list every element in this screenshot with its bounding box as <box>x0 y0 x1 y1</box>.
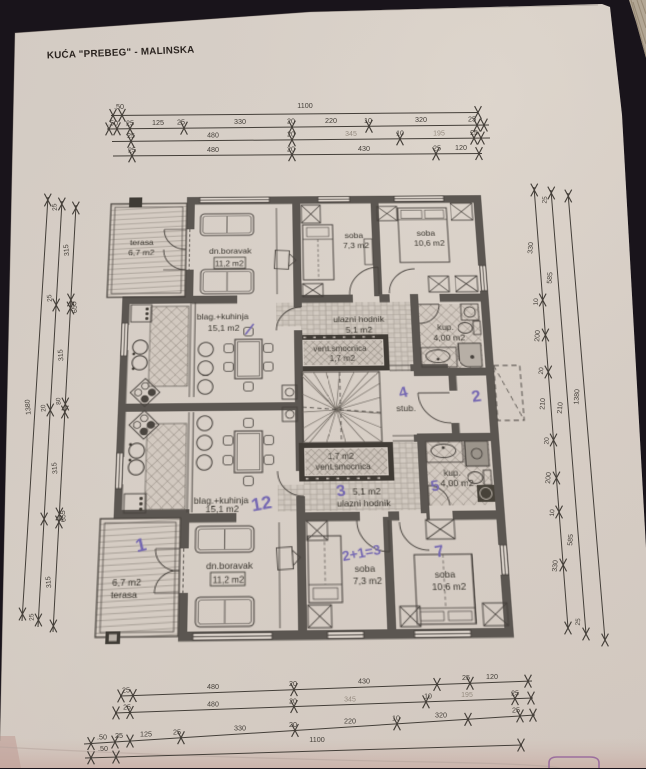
svg-text:330: 330 <box>234 723 246 732</box>
svg-text:10: 10 <box>424 694 432 701</box>
svg-text:125: 125 <box>140 730 152 739</box>
svg-text:220: 220 <box>344 716 356 725</box>
svg-text:655: 655 <box>71 301 79 313</box>
svg-text:345: 345 <box>344 696 356 703</box>
svg-text:210: 210 <box>539 398 547 410</box>
svg-text:25: 25 <box>46 294 54 302</box>
svg-text:315: 315 <box>51 462 59 474</box>
svg-text:330: 330 <box>527 242 535 254</box>
svg-text:655: 655 <box>60 510 68 522</box>
svg-text:320: 320 <box>435 711 447 720</box>
svg-text:20: 20 <box>543 437 551 445</box>
svg-text:1380: 1380 <box>24 399 32 415</box>
svg-text:.50: .50 <box>98 744 108 753</box>
svg-text:20: 20 <box>287 132 295 139</box>
svg-text:20: 20 <box>289 698 297 705</box>
svg-text:20: 20 <box>287 117 295 126</box>
svg-text:430: 430 <box>358 677 370 686</box>
svg-text:25: 25 <box>511 690 519 697</box>
svg-text:315: 315 <box>57 349 65 361</box>
svg-text:25: 25 <box>173 728 181 737</box>
svg-text:195: 195 <box>461 692 473 699</box>
svg-text:200: 200 <box>545 472 553 484</box>
svg-text:480: 480 <box>207 132 219 139</box>
svg-text:25: 25 <box>462 673 470 682</box>
svg-text:480: 480 <box>207 682 219 691</box>
svg-text:1100: 1100 <box>309 735 324 744</box>
svg-text:25: 25 <box>122 685 130 694</box>
svg-text:25: 25 <box>123 704 131 711</box>
svg-text:20: 20 <box>538 367 546 375</box>
svg-text:25: 25 <box>51 203 59 211</box>
svg-text:20: 20 <box>287 144 295 153</box>
svg-text:25: 25 <box>115 731 123 740</box>
svg-text:200: 200 <box>534 330 542 342</box>
svg-text:25: 25 <box>468 115 476 124</box>
svg-text:10: 10 <box>533 298 541 306</box>
svg-text:320: 320 <box>415 115 427 124</box>
svg-text:330: 330 <box>234 117 246 126</box>
svg-text:10: 10 <box>364 116 372 125</box>
svg-text:80: 80 <box>55 397 63 405</box>
svg-text:345: 345 <box>345 131 357 138</box>
svg-text:25: 25 <box>512 706 520 715</box>
svg-text:330: 330 <box>552 560 560 572</box>
svg-text:.50: .50 <box>114 102 124 111</box>
svg-text:195: 195 <box>433 130 445 137</box>
svg-text:120: 120 <box>486 672 498 681</box>
svg-text:.50: .50 <box>108 118 118 127</box>
svg-text:KUĆA "PREBEG" - MALINSKA: KUĆA "PREBEG" - MALINSKA <box>47 44 195 62</box>
svg-text:10: 10 <box>396 131 404 138</box>
svg-text:120: 120 <box>455 143 467 152</box>
svg-text:430: 430 <box>358 144 370 153</box>
svg-text:25: 25 <box>542 196 550 204</box>
svg-text:25: 25 <box>28 613 36 621</box>
svg-text:315: 315 <box>63 244 71 256</box>
svg-text:480: 480 <box>207 701 219 708</box>
svg-text:10: 10 <box>392 713 400 722</box>
svg-text:25: 25 <box>575 618 583 626</box>
svg-text:210: 210 <box>557 402 565 414</box>
svg-text:10: 10 <box>549 509 557 517</box>
svg-text:25: 25 <box>127 133 135 140</box>
svg-text:480: 480 <box>207 145 219 154</box>
svg-text:.50: .50 <box>97 732 107 741</box>
svg-text:585: 585 <box>547 272 555 284</box>
svg-text:25: 25 <box>126 118 134 127</box>
svg-text:25: 25 <box>433 143 441 152</box>
svg-text:1100: 1100 <box>297 101 312 110</box>
svg-text:25: 25 <box>470 130 478 137</box>
svg-text:1380: 1380 <box>573 389 581 405</box>
svg-text:25: 25 <box>128 145 136 154</box>
svg-text:585: 585 <box>567 534 575 546</box>
svg-text:25: 25 <box>177 118 185 127</box>
svg-text:220: 220 <box>325 116 337 125</box>
svg-text:315: 315 <box>45 576 53 588</box>
svg-text:20: 20 <box>40 404 48 412</box>
svg-text:125: 125 <box>152 118 164 127</box>
svg-text:20: 20 <box>289 679 297 688</box>
svg-text:20: 20 <box>289 720 297 729</box>
